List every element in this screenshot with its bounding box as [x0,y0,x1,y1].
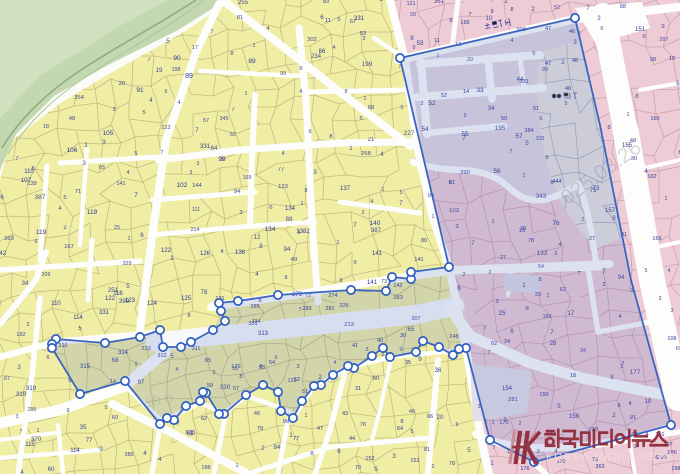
svg-text:8: 8 [187,313,190,319]
svg-text:1: 1 [84,142,88,149]
svg-text:1: 1 [363,96,366,102]
svg-text:5: 5 [298,230,301,236]
svg-text:3: 3 [239,210,242,216]
svg-text:20: 20 [119,81,126,87]
svg-text:1: 1 [490,460,494,467]
svg-text:302: 302 [307,37,317,43]
svg-text:18: 18 [43,124,49,130]
svg-text:296: 296 [28,407,37,413]
svg-text:81: 81 [424,447,430,453]
svg-text:119: 119 [87,209,98,216]
svg-text:126: 126 [200,251,211,257]
svg-text:6: 6 [269,205,272,211]
svg-text:89: 89 [323,0,329,5]
svg-text:139: 139 [27,181,36,187]
svg-text:105: 105 [103,130,114,137]
svg-text:8: 8 [329,134,332,140]
svg-text:3: 3 [659,296,662,302]
svg-text:151: 151 [635,27,646,33]
svg-text:251: 251 [108,287,119,294]
svg-text:114: 114 [70,448,80,454]
svg-text:198: 198 [172,67,181,73]
svg-text:5: 5 [166,38,170,45]
svg-text:47: 47 [317,426,323,432]
svg-text:78: 78 [449,461,455,467]
svg-text:90: 90 [173,55,181,62]
svg-text:94: 94 [234,189,241,195]
svg-text:380: 380 [124,452,133,458]
svg-text:198: 198 [671,466,680,472]
svg-text:354: 354 [74,95,85,101]
svg-text:6: 6 [140,232,144,239]
svg-text:123: 123 [278,184,289,190]
svg-text:345: 345 [220,116,229,122]
svg-text:387: 387 [35,194,46,201]
svg-text:20: 20 [410,12,416,18]
svg-text:6: 6 [165,89,168,95]
svg-text:21: 21 [368,137,375,143]
svg-text:70: 70 [355,465,361,471]
svg-text:329: 329 [123,261,132,267]
svg-text:7: 7 [161,150,164,156]
svg-text:4: 4 [143,450,147,457]
svg-text:8: 8 [285,275,288,281]
svg-text:53: 53 [417,41,424,47]
svg-text:1: 1 [382,187,385,193]
svg-text:3: 3 [313,169,317,176]
svg-text:4: 4 [300,89,303,95]
svg-text:102: 102 [177,182,188,189]
svg-text:134: 134 [285,206,296,212]
svg-text:1: 1 [245,91,248,97]
svg-text:17: 17 [192,45,198,51]
svg-text:8: 8 [510,7,513,13]
svg-text:35: 35 [79,424,87,431]
svg-text:125: 125 [181,296,192,302]
svg-text:5: 5 [400,190,403,196]
svg-text:331: 331 [200,144,211,150]
svg-text:8: 8 [340,278,343,284]
svg-text:137: 137 [340,186,351,192]
svg-text:122: 122 [105,296,116,302]
svg-text:6: 6 [308,129,311,135]
svg-text:88: 88 [620,4,626,10]
svg-text:6: 6 [35,239,38,245]
svg-text:152: 152 [365,456,374,462]
svg-text:91: 91 [136,87,144,94]
svg-text:1: 1 [301,201,304,207]
svg-text:69: 69 [676,346,680,352]
svg-text:7: 7 [195,127,199,134]
svg-text:7: 7 [586,5,590,12]
svg-text:144: 144 [192,183,202,189]
svg-text:31: 31 [355,386,361,392]
svg-text:1: 1 [235,463,238,469]
svg-text:8: 8 [410,35,414,42]
svg-text:106: 106 [667,336,676,342]
svg-text:3: 3 [197,161,200,167]
svg-text:242: 242 [0,250,7,257]
svg-text:1: 1 [128,236,131,242]
svg-text:62: 62 [201,416,207,422]
svg-text:3: 3 [17,364,21,371]
svg-text:89: 89 [185,73,193,80]
svg-text:84: 84 [273,444,281,451]
svg-text:166: 166 [652,236,661,242]
svg-text:3: 3 [363,36,366,42]
svg-text:4: 4 [20,469,24,474]
svg-text:169: 169 [243,175,252,181]
svg-text:98: 98 [650,57,656,63]
svg-text:136: 136 [235,250,246,256]
svg-text:8: 8 [230,51,233,57]
svg-text:68: 68 [368,105,374,111]
svg-text:122: 122 [161,125,170,131]
svg-text:5: 5 [374,466,378,473]
svg-text:9: 9 [353,260,356,266]
svg-text:20: 20 [436,414,444,421]
svg-text:52: 52 [554,5,560,11]
svg-text:79: 79 [257,426,263,432]
svg-text:121: 121 [407,1,416,7]
svg-text:8: 8 [345,89,348,95]
svg-text:49: 49 [291,257,298,263]
svg-text:KOREA MEDIA NEWS: KOREA MEDIA NEWS [546,452,677,463]
svg-text:2: 2 [261,445,265,452]
svg-text:297: 297 [659,37,668,43]
svg-text:34: 34 [21,280,29,287]
svg-text:255: 255 [238,0,249,6]
svg-text:363: 363 [4,236,14,242]
svg-text:5: 5 [135,151,138,157]
svg-text:67: 67 [350,19,357,25]
svg-text:5: 5 [359,116,362,122]
svg-text:77: 77 [278,167,285,173]
svg-text:3: 3 [190,170,193,176]
svg-text:71: 71 [75,189,82,195]
svg-text:4: 4 [149,97,153,104]
svg-text:3: 3 [82,160,86,167]
svg-text:81: 81 [237,15,244,21]
svg-text:5: 5 [410,429,413,435]
svg-text:114: 114 [73,315,83,321]
svg-text:5: 5 [337,17,340,23]
svg-text:89: 89 [248,58,256,65]
svg-text:182: 182 [16,332,25,338]
svg-text:8: 8 [449,18,452,24]
svg-text:66: 66 [427,414,433,420]
svg-text:227: 227 [404,130,415,137]
svg-text:268: 268 [361,151,372,157]
svg-text:1: 1 [626,112,629,118]
svg-text:6: 6 [600,26,603,32]
svg-text:7: 7 [211,29,214,35]
svg-text:4: 4 [332,45,335,51]
svg-text:36: 36 [435,368,442,374]
svg-text:119: 119 [36,229,47,236]
svg-text:4: 4 [644,168,648,175]
svg-text:48: 48 [69,116,76,122]
svg-text:1: 1 [336,240,339,246]
svg-text:140: 140 [370,220,381,227]
svg-text:1: 1 [37,428,40,434]
svg-text:151: 151 [410,458,419,464]
svg-text:12: 12 [254,234,261,241]
svg-text:7: 7 [492,445,495,451]
svg-text:7: 7 [134,192,138,199]
svg-text:60: 60 [112,415,119,421]
svg-text:44: 44 [349,436,355,442]
svg-text:6: 6 [0,194,4,201]
svg-text:2: 2 [361,210,364,216]
svg-text:141: 141 [414,257,423,263]
svg-text:19: 19 [156,67,163,74]
svg-text:4: 4 [371,199,374,205]
svg-text:5: 5 [126,283,130,290]
svg-text:399: 399 [119,298,130,305]
svg-text:7: 7 [16,156,19,162]
svg-text:214: 214 [191,227,200,233]
svg-text:9: 9 [661,24,664,30]
svg-text:188: 188 [201,465,210,471]
svg-text:77: 77 [293,436,299,442]
svg-text:6: 6 [46,355,49,361]
svg-text:234: 234 [311,53,322,60]
svg-text:8: 8 [305,188,308,194]
svg-text:1: 1 [170,255,174,262]
svg-text:67: 67 [4,376,10,382]
svg-text:64: 64 [397,426,403,432]
svg-text:80: 80 [421,238,427,244]
svg-text:361: 361 [434,0,445,5]
svg-text:7: 7 [20,429,23,435]
svg-text:370: 370 [31,436,42,443]
svg-text:7: 7 [399,200,403,207]
svg-text:3: 3 [112,107,115,113]
svg-text:73: 73 [381,279,387,285]
svg-text:363: 363 [595,464,604,470]
svg-text:9: 9 [99,446,103,453]
svg-text:9: 9 [67,408,70,414]
svg-text:6: 6 [337,448,341,455]
svg-text:7: 7 [468,12,471,18]
svg-text:6: 6 [676,80,680,87]
svg-text:60: 60 [48,466,55,473]
svg-text:5: 5 [105,405,108,411]
svg-text:160: 160 [650,116,659,122]
svg-text:10: 10 [669,56,675,62]
svg-text:176: 176 [520,466,529,472]
svg-text:46: 46 [254,411,261,417]
svg-text:5: 5 [645,268,648,274]
svg-text:8: 8 [31,166,34,172]
svg-text:11: 11 [434,38,440,44]
svg-text:331: 331 [99,310,110,316]
svg-text:1: 1 [289,432,293,439]
svg-text:124: 124 [147,301,158,307]
svg-text:4: 4 [177,100,180,106]
svg-text:4: 4 [668,268,671,274]
svg-text:387: 387 [371,227,382,234]
svg-text:9: 9 [413,45,416,51]
svg-text:134: 134 [265,226,276,233]
svg-text:3: 3 [392,453,396,460]
svg-text:78: 78 [201,289,208,296]
svg-text:8: 8 [607,125,610,131]
svg-text:209: 209 [42,272,51,278]
svg-text:94: 94 [283,246,291,253]
svg-text:3: 3 [670,308,673,314]
svg-text:1: 1 [305,413,308,419]
svg-text:1: 1 [432,214,435,220]
svg-text:1: 1 [252,43,255,49]
svg-text:5: 5 [401,105,404,111]
svg-text:141: 141 [117,181,126,187]
svg-text:76: 76 [360,422,366,428]
svg-text:122: 122 [161,248,172,254]
svg-text:64: 64 [210,145,218,152]
svg-text:9: 9 [456,422,459,428]
svg-text:65: 65 [99,165,105,171]
svg-text:62: 62 [230,132,236,138]
svg-text:57: 57 [203,118,209,124]
svg-text:188: 188 [460,20,469,26]
svg-text:106: 106 [67,147,78,154]
svg-text:10: 10 [485,15,493,22]
svg-text:2: 2 [26,322,29,328]
svg-text:99: 99 [280,71,286,77]
svg-text:319: 319 [16,391,27,398]
svg-text:35: 35 [405,360,411,366]
svg-text:9: 9 [418,356,422,363]
svg-text:2: 2 [431,464,434,470]
svg-text:4: 4 [380,151,384,158]
svg-text:4: 4 [58,206,61,212]
svg-text:25: 25 [114,225,120,231]
svg-text:88: 88 [286,216,293,223]
svg-text:110: 110 [51,301,61,307]
svg-text:3: 3 [102,139,106,146]
svg-text:199: 199 [362,61,373,68]
svg-text:2: 2 [531,6,535,13]
svg-text:43: 43 [342,411,348,417]
svg-text:5: 5 [467,447,471,454]
svg-text:138: 138 [185,430,196,436]
svg-text:111: 111 [192,207,200,213]
svg-text:141: 141 [372,251,383,257]
svg-text:162: 162 [647,174,656,180]
svg-text:7: 7 [353,222,357,229]
svg-text:167: 167 [64,244,74,250]
svg-text:141: 141 [367,280,378,286]
svg-text:60: 60 [373,375,380,382]
svg-text:319: 319 [26,386,37,392]
svg-text:1: 1 [665,196,668,202]
svg-text:11: 11 [325,18,331,24]
svg-text:46: 46 [409,409,416,415]
svg-text:77: 77 [86,437,93,444]
svg-text:3: 3 [16,414,19,420]
